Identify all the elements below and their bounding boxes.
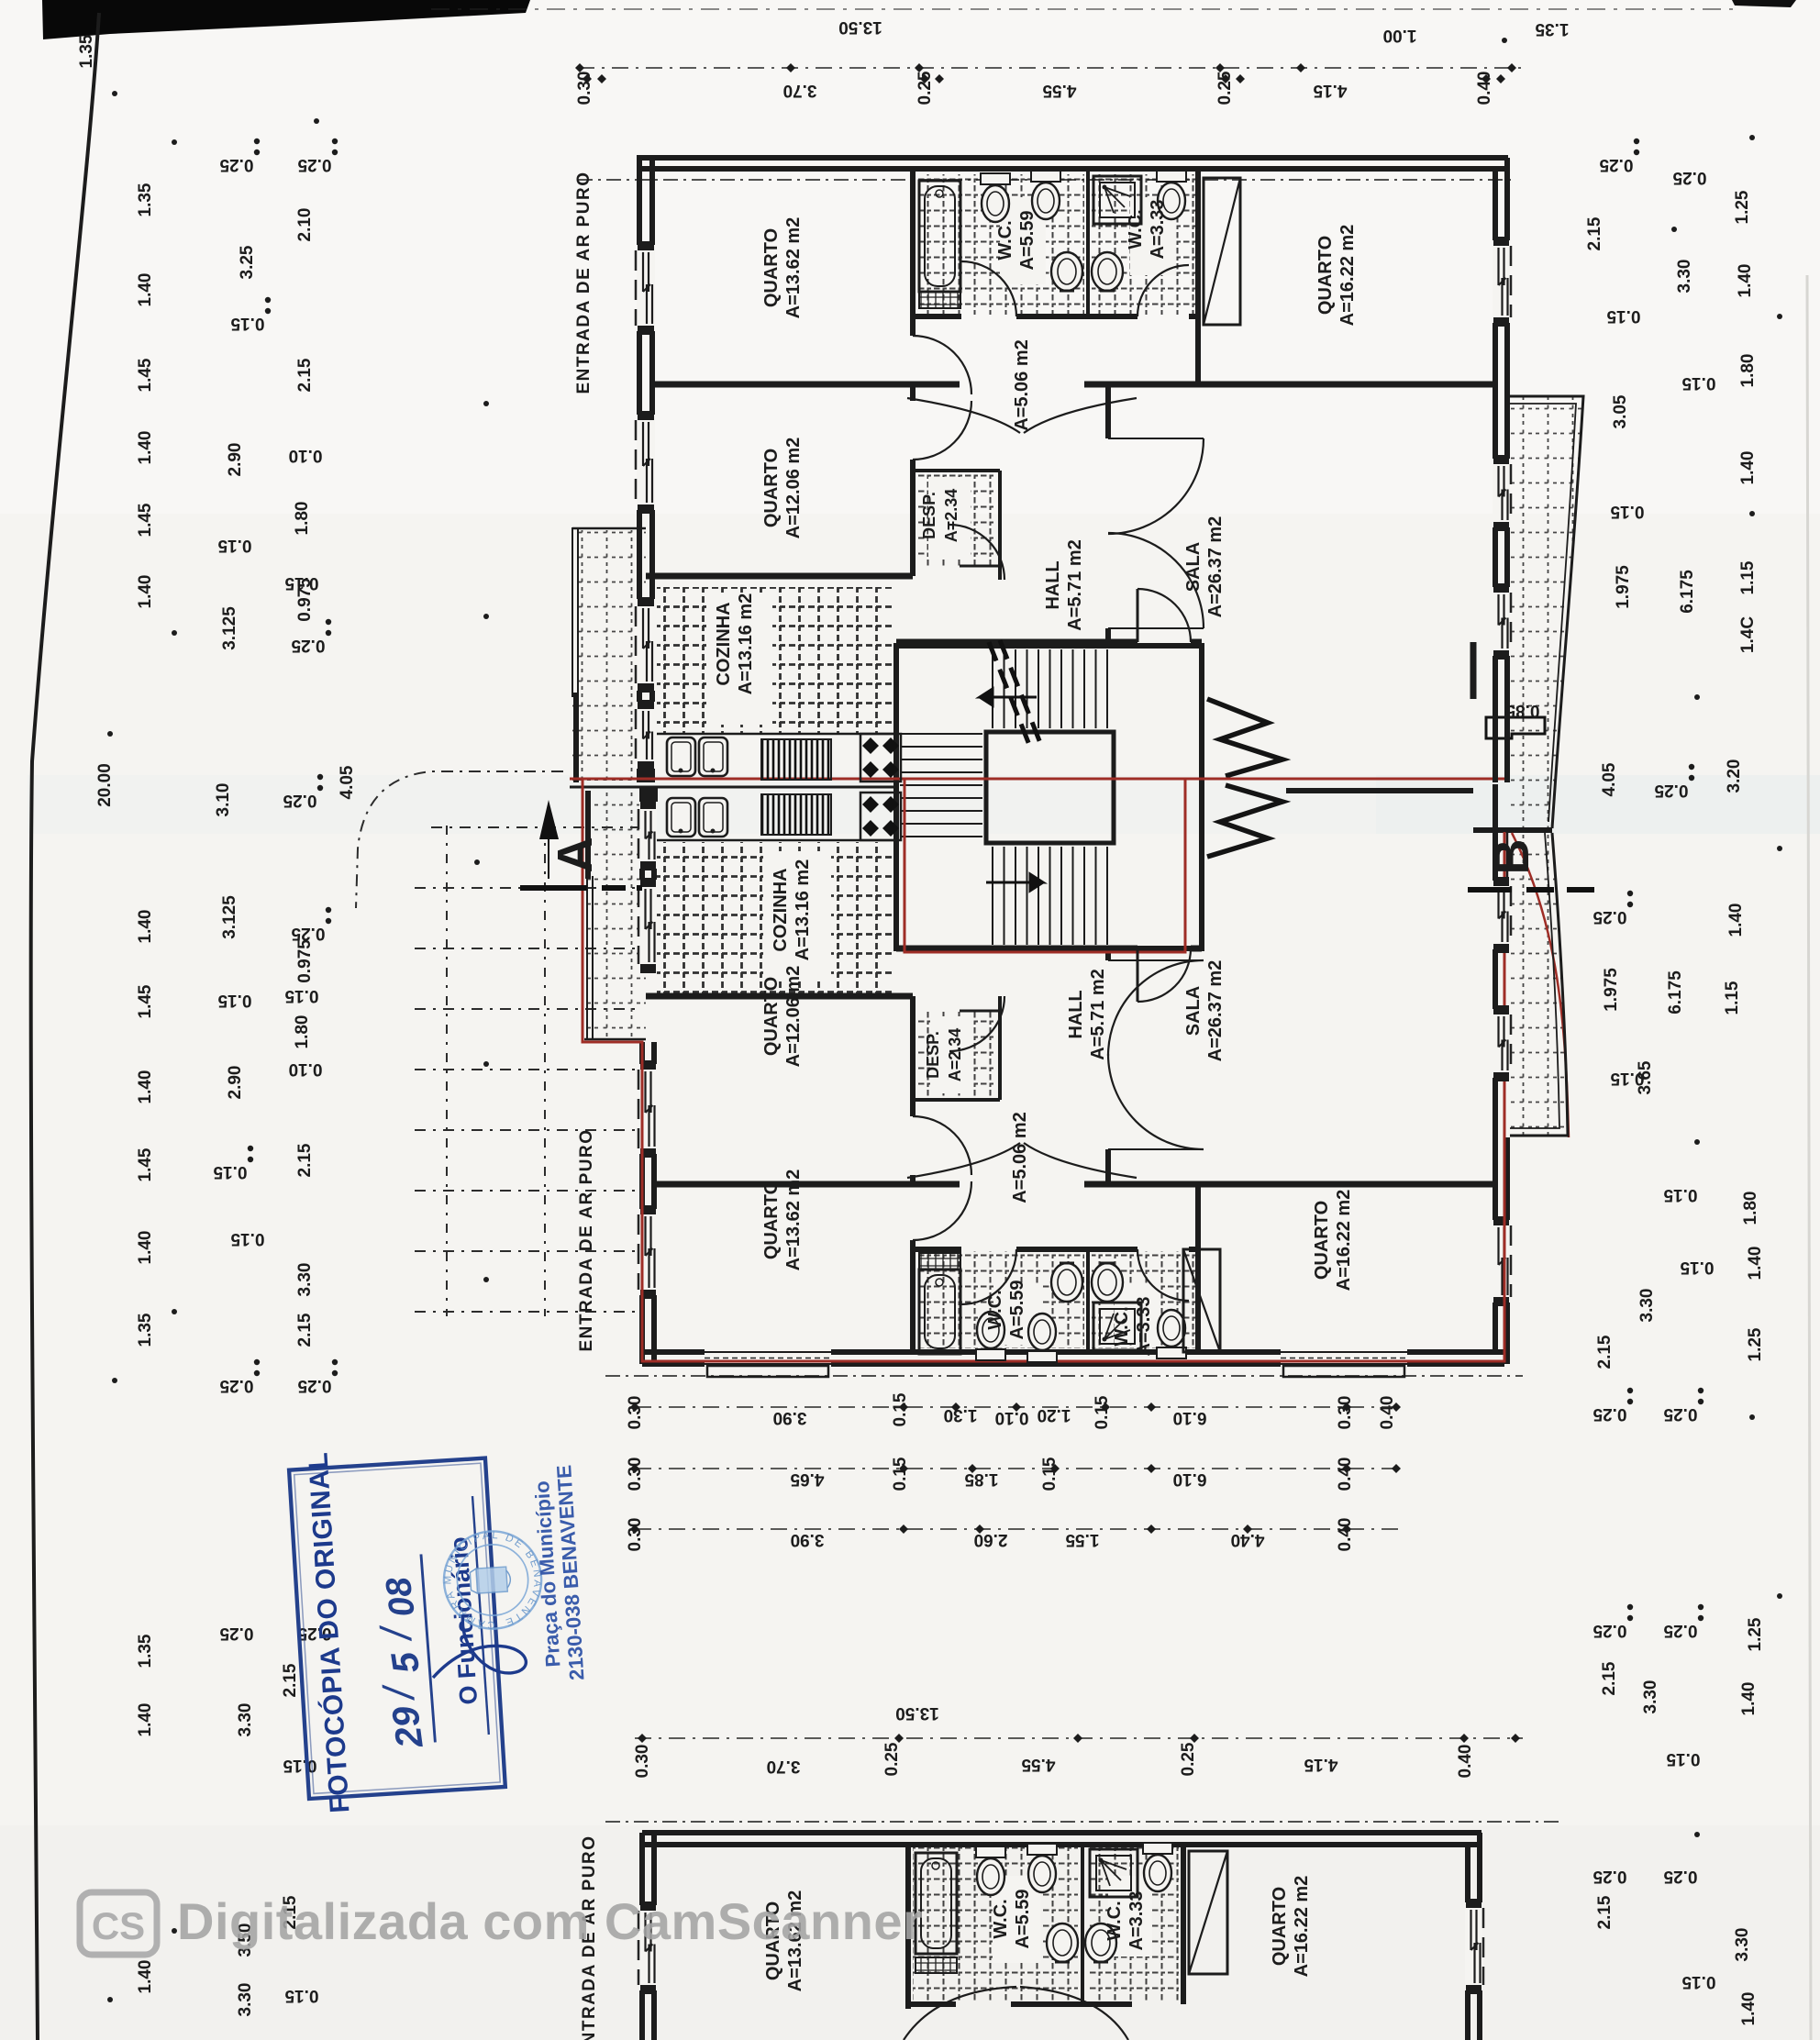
- svg-text:4.55: 4.55: [1042, 81, 1076, 100]
- svg-text:A=26.37 m2: A=26.37 m2: [1205, 960, 1226, 1062]
- svg-text:B: B: [1484, 839, 1539, 875]
- svg-text:3.70: 3.70: [783, 81, 817, 100]
- svg-text:1.30: 1.30: [944, 1405, 978, 1425]
- svg-text:2.15: 2.15: [1585, 216, 1604, 250]
- svg-text:0.25: 0.25: [1672, 168, 1706, 187]
- svg-text:A=3.33: A=3.33: [1134, 1296, 1154, 1356]
- svg-text:2.15: 2.15: [295, 1143, 315, 1177]
- svg-text:ENTRADA DE AR PURO: ENTRADA DE AR PURO: [577, 1128, 596, 1351]
- svg-text:A=5.06 m2: A=5.06 m2: [1012, 339, 1032, 431]
- svg-text:0.25: 0.25: [1663, 1621, 1697, 1640]
- svg-text:0.25: 0.25: [219, 1376, 253, 1395]
- svg-text:A=16.22 m2: A=16.22 m2: [1292, 1876, 1312, 1978]
- svg-text:0.10: 0.10: [289, 446, 323, 465]
- svg-text:2.10: 2.10: [295, 208, 315, 242]
- svg-text:COZINHA: COZINHA: [714, 602, 734, 685]
- svg-text:0.15: 0.15: [1610, 1069, 1644, 1088]
- svg-text:0.30: 0.30: [633, 1745, 652, 1779]
- svg-text:A=5.06 m2: A=5.06 m2: [1010, 1112, 1030, 1203]
- svg-text:SALA: SALA: [1183, 542, 1204, 592]
- svg-text:0.25: 0.25: [297, 1376, 331, 1395]
- svg-text:3.25: 3.25: [238, 245, 257, 279]
- svg-text:A=26.37 m2: A=26.37 m2: [1205, 516, 1226, 618]
- svg-text:0.25: 0.25: [291, 924, 325, 943]
- svg-text:1.85: 1.85: [964, 1469, 998, 1489]
- svg-text:1.45: 1.45: [136, 503, 155, 537]
- svg-text:1.25: 1.25: [1746, 1617, 1765, 1651]
- svg-text:4.05: 4.05: [338, 765, 357, 799]
- svg-text:0.25: 0.25: [1179, 1742, 1198, 1776]
- svg-text:1.40: 1.40: [136, 575, 155, 609]
- svg-text:2.15: 2.15: [295, 1313, 315, 1347]
- svg-text:0.25: 0.25: [283, 791, 316, 810]
- svg-text:1.00: 1.00: [1383, 26, 1417, 45]
- svg-text:1.40: 1.40: [1739, 1992, 1759, 2026]
- svg-text:DESP.: DESP.: [920, 492, 938, 539]
- svg-text:1.25: 1.25: [1746, 1327, 1765, 1361]
- svg-text:0.30: 0.30: [1336, 1396, 1355, 1430]
- svg-text:0.25: 0.25: [1663, 1867, 1697, 1886]
- svg-text:1.40: 1.40: [136, 273, 155, 307]
- svg-text:2.15: 2.15: [1595, 1895, 1615, 1929]
- svg-text:1.15: 1.15: [1723, 981, 1742, 1014]
- svg-text:0.25: 0.25: [1663, 1404, 1697, 1424]
- svg-text:W.C.: W.C.: [1104, 1901, 1125, 1940]
- svg-text:A=13.16 m2: A=13.16 m2: [736, 593, 756, 695]
- svg-text:0.25: 0.25: [1592, 1621, 1626, 1640]
- svg-text:A=3.33: A=3.33: [1148, 199, 1168, 259]
- svg-text:0.15: 0.15: [230, 314, 264, 333]
- svg-text:A=13.16 m2: A=13.16 m2: [793, 859, 813, 961]
- svg-text:A=3.33: A=3.33: [1126, 1890, 1147, 1950]
- svg-text:2.15: 2.15: [281, 1663, 300, 1697]
- svg-text:3.30: 3.30: [1733, 1928, 1752, 1962]
- svg-text:0.30: 0.30: [626, 1458, 645, 1491]
- svg-text:SALA: SALA: [1183, 986, 1204, 1036]
- svg-text:1.40: 1.40: [1746, 1247, 1765, 1281]
- svg-text:HALL: HALL: [1043, 560, 1063, 609]
- svg-text:A: A: [548, 837, 603, 873]
- svg-text:A=12.06 m2: A=12.06 m2: [783, 966, 804, 1068]
- svg-text:A=5.59: A=5.59: [1007, 1280, 1027, 1339]
- svg-text:20.00: 20.00: [95, 763, 115, 807]
- svg-text:A=16.22 m2: A=16.22 m2: [1334, 1190, 1354, 1292]
- svg-text:3.30: 3.30: [236, 1983, 255, 2017]
- svg-text:29: 29: [383, 1703, 431, 1751]
- svg-text:0.30: 0.30: [626, 1518, 645, 1552]
- svg-text:0.40: 0.40: [1378, 1396, 1397, 1430]
- svg-text:0.40: 0.40: [1336, 1518, 1355, 1552]
- svg-text:QUARTO: QUARTO: [761, 228, 782, 307]
- svg-text:3.30: 3.30: [1675, 260, 1694, 294]
- svg-text:0.15: 0.15: [284, 986, 318, 1005]
- svg-text:QUARTO: QUARTO: [1270, 1887, 1290, 1966]
- svg-text:3.30: 3.30: [236, 1703, 255, 1737]
- svg-text:0.15: 0.15: [891, 1457, 910, 1491]
- svg-text:CS: CS: [92, 1904, 145, 1947]
- svg-text:4.15: 4.15: [1304, 1755, 1337, 1774]
- svg-text:0.40: 0.40: [1456, 1745, 1475, 1779]
- svg-text:1.40: 1.40: [136, 910, 155, 944]
- svg-text:1.975: 1.975: [1602, 968, 1621, 1012]
- svg-text:1.40: 1.40: [1738, 451, 1758, 485]
- svg-text:4.05: 4.05: [1600, 762, 1619, 796]
- svg-text:QUARTO: QUARTO: [761, 977, 782, 1056]
- svg-text:13.50: 13.50: [895, 1703, 939, 1723]
- svg-text:0.15: 0.15: [1666, 1749, 1700, 1768]
- svg-text:1.25: 1.25: [1733, 190, 1752, 224]
- svg-text:A=5.59: A=5.59: [1017, 210, 1038, 270]
- svg-text:3.90: 3.90: [773, 1408, 807, 1427]
- svg-text:W.C.: W.C.: [1126, 209, 1146, 249]
- svg-text:1.80: 1.80: [293, 1015, 312, 1049]
- svg-text:1.35: 1.35: [1535, 19, 1569, 39]
- svg-text:1.45: 1.45: [136, 358, 155, 392]
- svg-text:0.15: 0.15: [1663, 1185, 1697, 1204]
- svg-text:0.30: 0.30: [626, 1396, 645, 1430]
- svg-text:0.15: 0.15: [1606, 306, 1640, 326]
- svg-text:3.30: 3.30: [1637, 1289, 1657, 1323]
- svg-text:0.15: 0.15: [1680, 1258, 1714, 1277]
- svg-text:A=5.71 m2: A=5.71 m2: [1088, 969, 1108, 1060]
- svg-text:1.40: 1.40: [136, 1070, 155, 1104]
- svg-text:3.90: 3.90: [791, 1530, 825, 1549]
- svg-text:0.15: 0.15: [1681, 373, 1715, 393]
- svg-text:0.30: 0.30: [575, 72, 594, 105]
- svg-text:QUARTO: QUARTO: [761, 1181, 782, 1259]
- svg-text:0.25: 0.25: [1592, 907, 1626, 926]
- svg-text:0.25: 0.25: [291, 636, 325, 655]
- svg-text:0.10: 0.10: [995, 1408, 1029, 1427]
- svg-text:2.15: 2.15: [1595, 1335, 1615, 1369]
- svg-text:1.80: 1.80: [293, 502, 312, 536]
- svg-text:W.C.: W.C.: [1112, 1306, 1132, 1346]
- svg-text:1.45: 1.45: [136, 984, 155, 1018]
- svg-text:1.40: 1.40: [1736, 264, 1755, 298]
- svg-text:0.15: 0.15: [230, 1229, 264, 1248]
- svg-text:A=5.71 m2: A=5.71 m2: [1065, 539, 1085, 631]
- svg-text:A=16.22 m2: A=16.22 m2: [1337, 225, 1358, 327]
- svg-text:1.80: 1.80: [1738, 354, 1758, 388]
- svg-text:1.35: 1.35: [136, 183, 155, 216]
- svg-text:A=2.34: A=2.34: [942, 489, 960, 543]
- svg-text:A=2.34: A=2.34: [946, 1028, 964, 1082]
- svg-text:1.40: 1.40: [136, 1231, 155, 1265]
- svg-text:1.80: 1.80: [1741, 1192, 1760, 1225]
- svg-text:Digitalizada com CamScanner: Digitalizada com CamScanner: [177, 1892, 923, 1950]
- svg-text:0.15: 0.15: [284, 573, 318, 593]
- svg-text:W.C.: W.C.: [995, 220, 1015, 260]
- svg-text:2.90: 2.90: [226, 443, 245, 477]
- svg-text:3.125: 3.125: [220, 895, 239, 939]
- svg-text:0.10: 0.10: [289, 1059, 323, 1079]
- svg-text:2.60: 2.60: [974, 1530, 1008, 1549]
- svg-text:ENTRADA DE AR PURO: ENTRADA DE AR PURO: [574, 171, 594, 394]
- svg-text:0.25: 0.25: [1592, 1404, 1626, 1424]
- svg-text:0.15: 0.15: [217, 991, 251, 1010]
- svg-text:0.15: 0.15: [284, 1986, 318, 2005]
- svg-text:0.25: 0.25: [219, 1624, 253, 1643]
- svg-text:A=12.06 m2: A=12.06 m2: [783, 438, 804, 539]
- svg-text:1.35: 1.35: [77, 34, 96, 68]
- svg-text:A=13.62 m2: A=13.62 m2: [783, 217, 804, 319]
- svg-text:1.20: 1.20: [1038, 1405, 1071, 1425]
- svg-text:COZINHA: COZINHA: [771, 868, 791, 951]
- svg-text:0.25: 0.25: [297, 155, 331, 174]
- svg-text:1.40: 1.40: [1739, 1682, 1759, 1716]
- svg-text:1.15: 1.15: [1738, 560, 1758, 594]
- svg-text:1.40: 1.40: [136, 431, 155, 465]
- svg-text:A=5.59: A=5.59: [1013, 1889, 1033, 1948]
- svg-text:1.40: 1.40: [136, 1960, 155, 1994]
- svg-text:13.50: 13.50: [838, 17, 882, 37]
- svg-text:3.05: 3.05: [1611, 394, 1630, 428]
- svg-text:3.10: 3.10: [214, 783, 233, 817]
- svg-text:W.C.: W.C.: [985, 1290, 1005, 1329]
- svg-text:0.15: 0.15: [1610, 502, 1644, 521]
- svg-text:2.15: 2.15: [295, 358, 315, 392]
- svg-text:4.55: 4.55: [1021, 1755, 1055, 1774]
- svg-text:0.975: 0.975: [295, 939, 315, 983]
- svg-text:DESP.: DESP.: [924, 1031, 942, 1079]
- svg-text:QUARTO: QUARTO: [1315, 236, 1336, 315]
- svg-text:0.15: 0.15: [1040, 1457, 1060, 1491]
- svg-text:3.30: 3.30: [1641, 1680, 1660, 1714]
- svg-text:0.15: 0.15: [1681, 1972, 1715, 1991]
- svg-text:1.975: 1.975: [1614, 565, 1633, 609]
- svg-text:W.C.: W.C.: [991, 1899, 1011, 1938]
- svg-text:1.4C: 1.4C: [1738, 616, 1758, 653]
- svg-text:0.40: 0.40: [1336, 1458, 1355, 1491]
- svg-text:1.35: 1.35: [136, 1313, 155, 1347]
- svg-text:0.15: 0.15: [213, 1162, 247, 1181]
- svg-text:08: 08: [379, 1575, 423, 1620]
- svg-text:6.175: 6.175: [1678, 570, 1697, 614]
- svg-text:0.25: 0.25: [1654, 781, 1688, 800]
- svg-text:1.40: 1.40: [1726, 904, 1746, 937]
- svg-text:0.25: 0.25: [1599, 155, 1633, 174]
- svg-text:A=13.62 m2: A=13.62 m2: [783, 1170, 804, 1271]
- svg-text:6.175: 6.175: [1666, 970, 1685, 1014]
- svg-text:0.15: 0.15: [217, 536, 251, 555]
- svg-text:0.15: 0.15: [891, 1392, 910, 1426]
- svg-text:1.55: 1.55: [1065, 1530, 1099, 1549]
- svg-text:QUARTO: QUARTO: [761, 449, 782, 527]
- svg-text:6.10: 6.10: [1173, 1408, 1207, 1427]
- svg-text:0.15: 0.15: [1093, 1395, 1112, 1429]
- svg-text:3.125: 3.125: [220, 606, 239, 650]
- svg-text:QUARTO: QUARTO: [1312, 1201, 1332, 1280]
- svg-text:1.35: 1.35: [136, 1634, 155, 1668]
- svg-text:0.25: 0.25: [882, 1742, 902, 1776]
- svg-text:1.45: 1.45: [136, 1147, 155, 1181]
- svg-text:4.65: 4.65: [790, 1469, 824, 1489]
- svg-text:3.30: 3.30: [295, 1263, 315, 1297]
- svg-text:HALL: HALL: [1066, 990, 1086, 1038]
- svg-text:3.70: 3.70: [767, 1757, 801, 1776]
- svg-text:4.15: 4.15: [1313, 81, 1347, 100]
- svg-text:2.90: 2.90: [226, 1066, 245, 1100]
- svg-text:0.25: 0.25: [219, 155, 253, 174]
- svg-text:0.85: 0.85: [1505, 701, 1539, 720]
- svg-text:1.40: 1.40: [136, 1703, 155, 1737]
- svg-text:2.15: 2.15: [1600, 1661, 1619, 1695]
- svg-text:3.20: 3.20: [1725, 759, 1744, 793]
- svg-text:0.25: 0.25: [1592, 1867, 1626, 1886]
- svg-text:6.10: 6.10: [1173, 1469, 1207, 1489]
